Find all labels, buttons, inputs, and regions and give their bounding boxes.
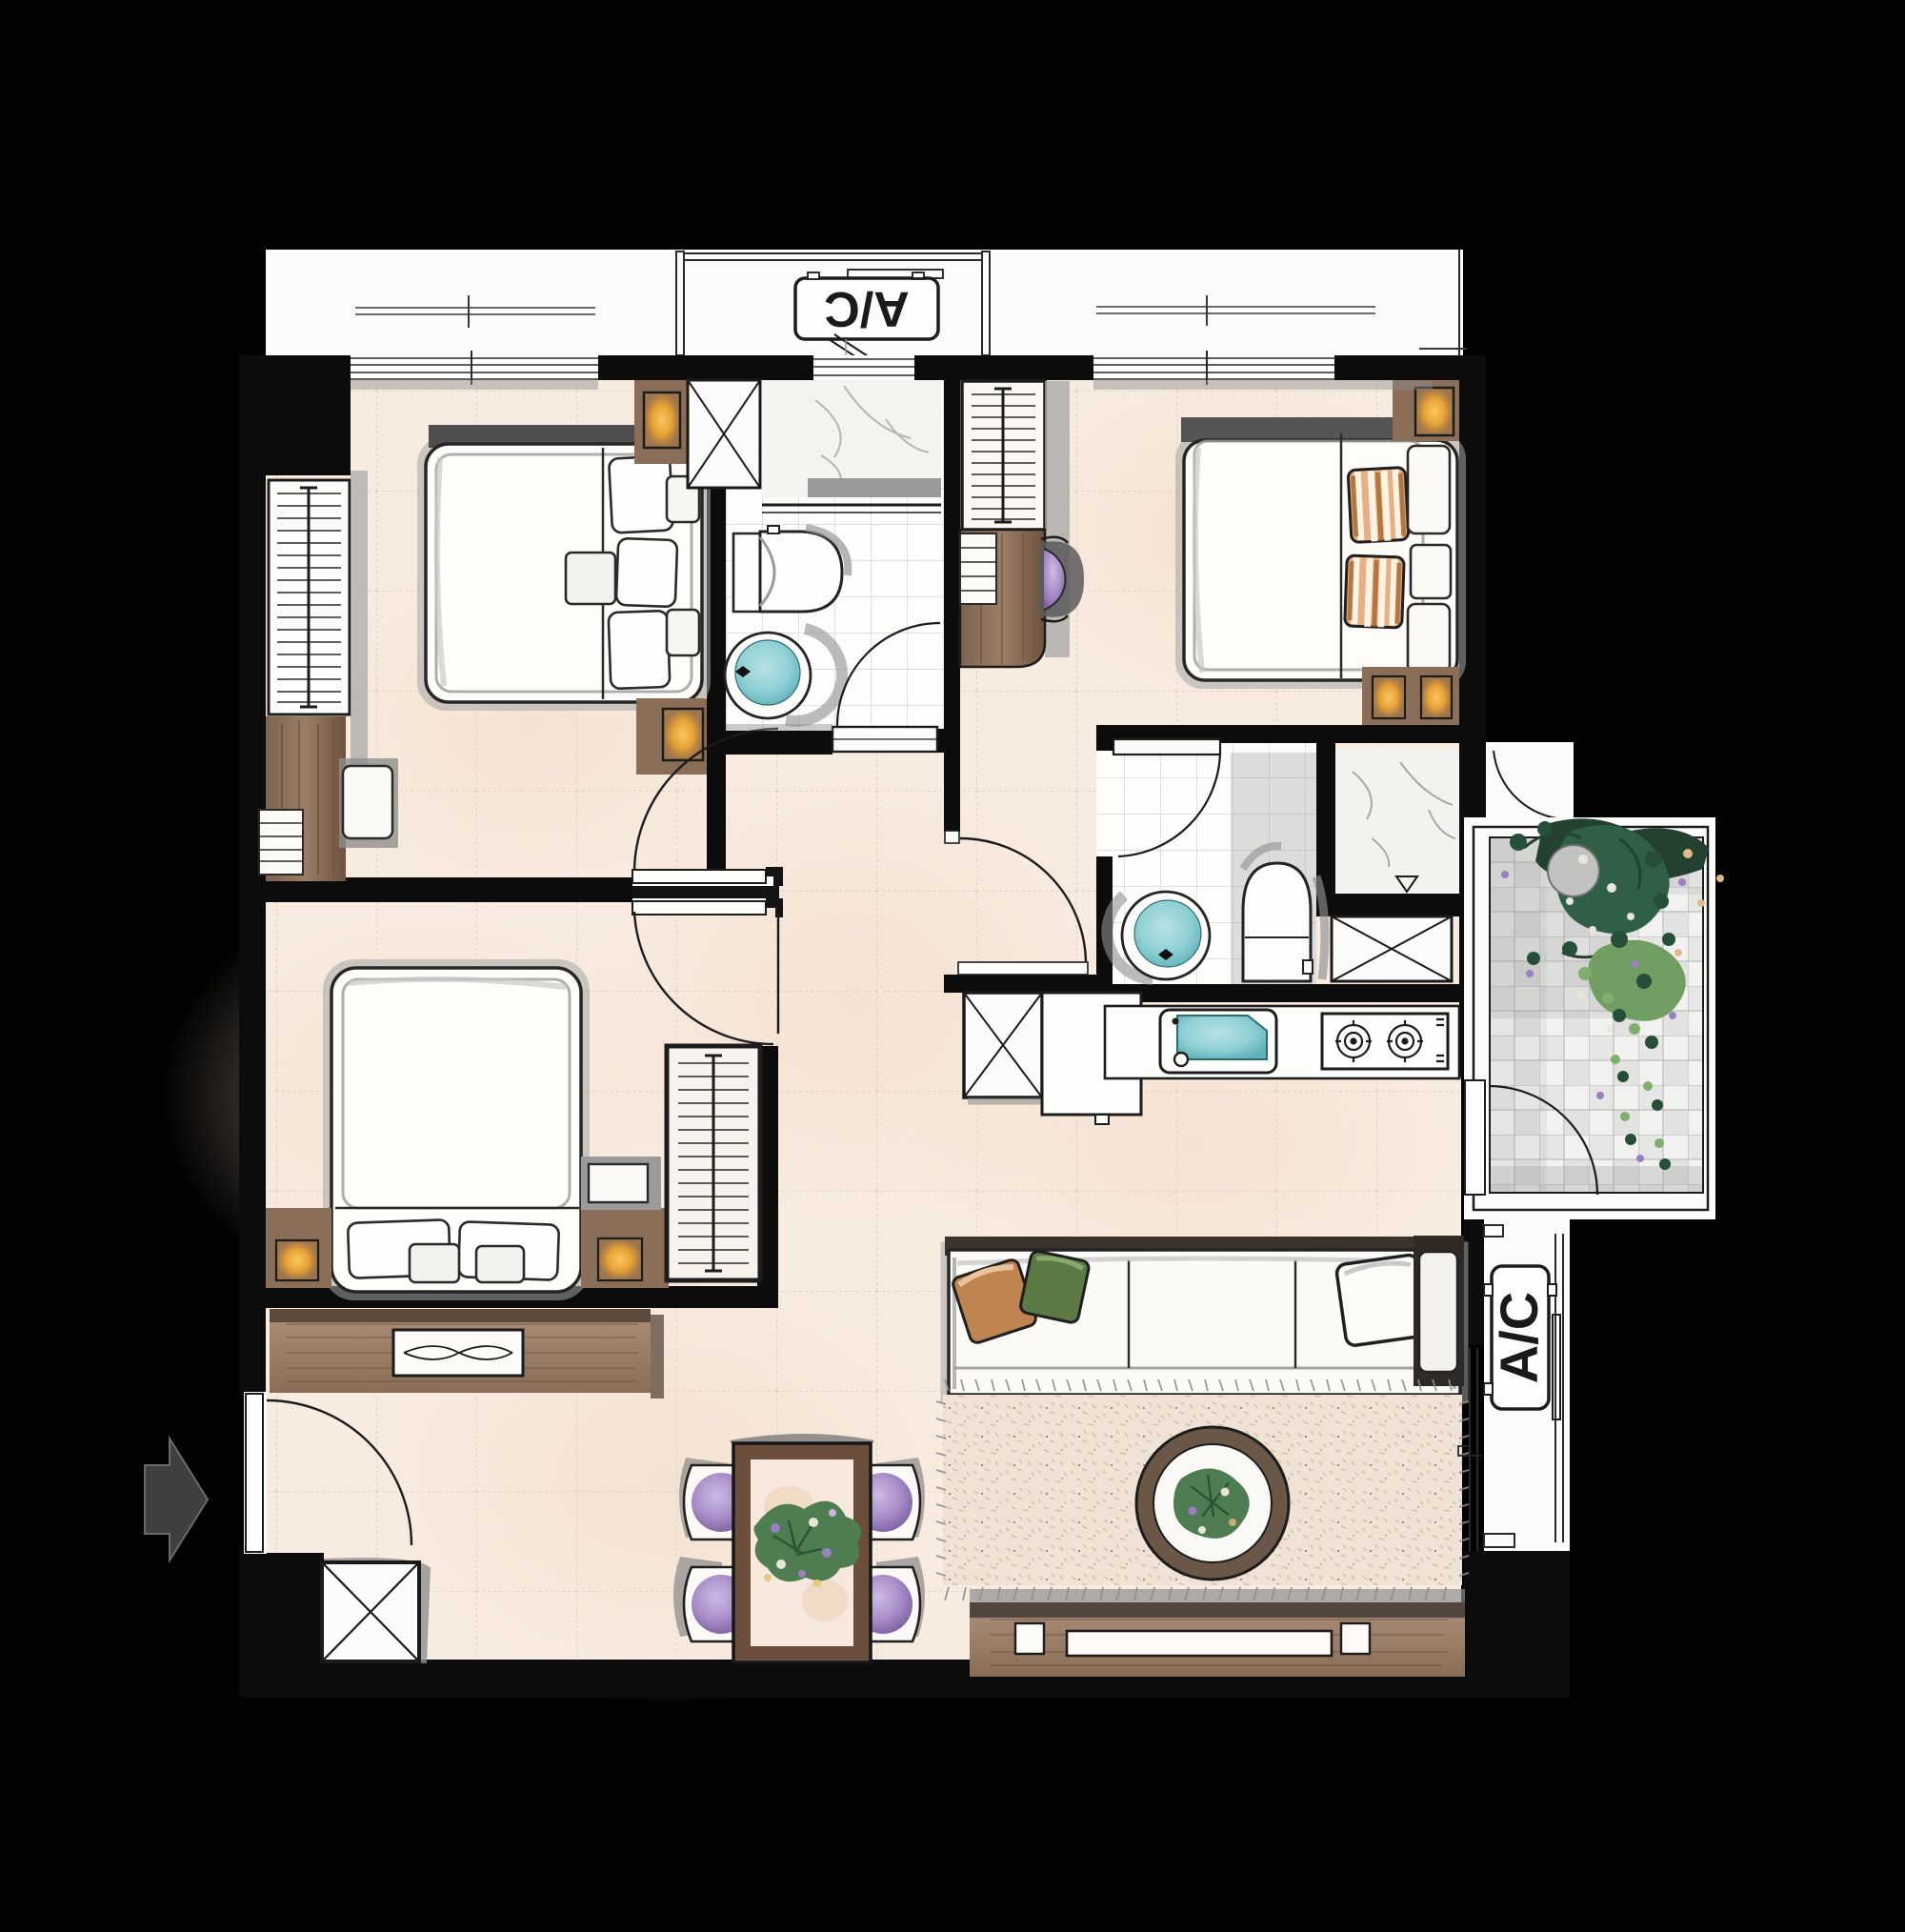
svg-text:A/C: A/C [824, 281, 910, 336]
svg-text:A/C: A/C [1489, 1292, 1549, 1383]
